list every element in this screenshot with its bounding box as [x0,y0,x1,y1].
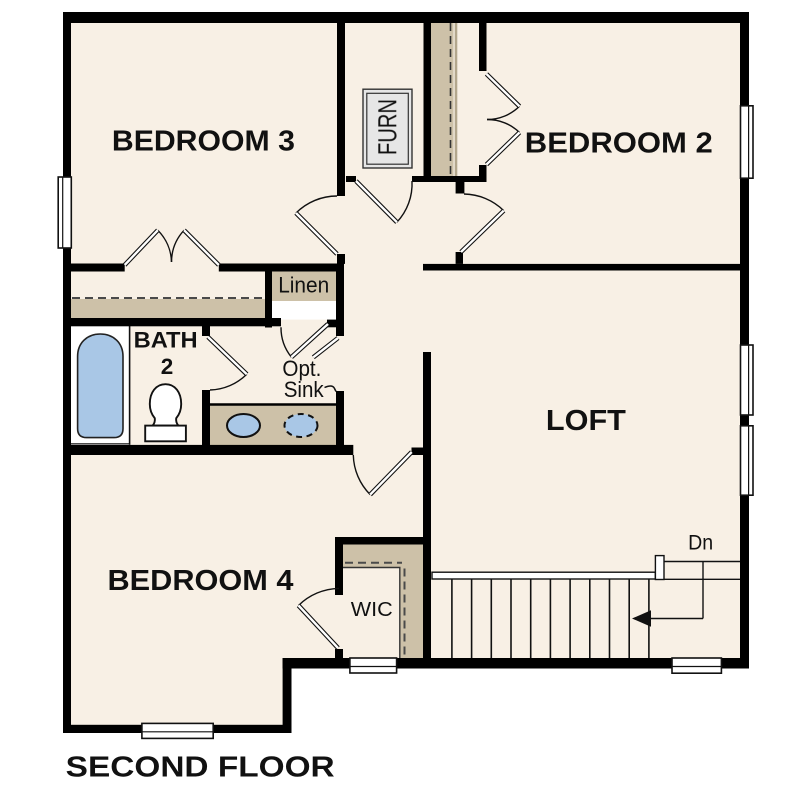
svg-text:WIC: WIC [351,599,393,621]
svg-text:BEDROOM 3: BEDROOM 3 [112,125,295,157]
svg-text:BATH: BATH [134,327,198,352]
svg-text:FURN: FURN [372,99,402,155]
svg-text:2: 2 [161,354,174,379]
svg-text:LOFT: LOFT [546,405,626,437]
svg-text:BEDROOM 2: BEDROOM 2 [525,127,713,159]
svg-text:Linen: Linen [278,273,329,298]
svg-text:Sink: Sink [284,377,325,402]
svg-text:SECOND FLOOR: SECOND FLOOR [66,752,335,784]
svg-text:BEDROOM 4: BEDROOM 4 [108,565,294,597]
svg-text:Dn: Dn [688,530,713,554]
